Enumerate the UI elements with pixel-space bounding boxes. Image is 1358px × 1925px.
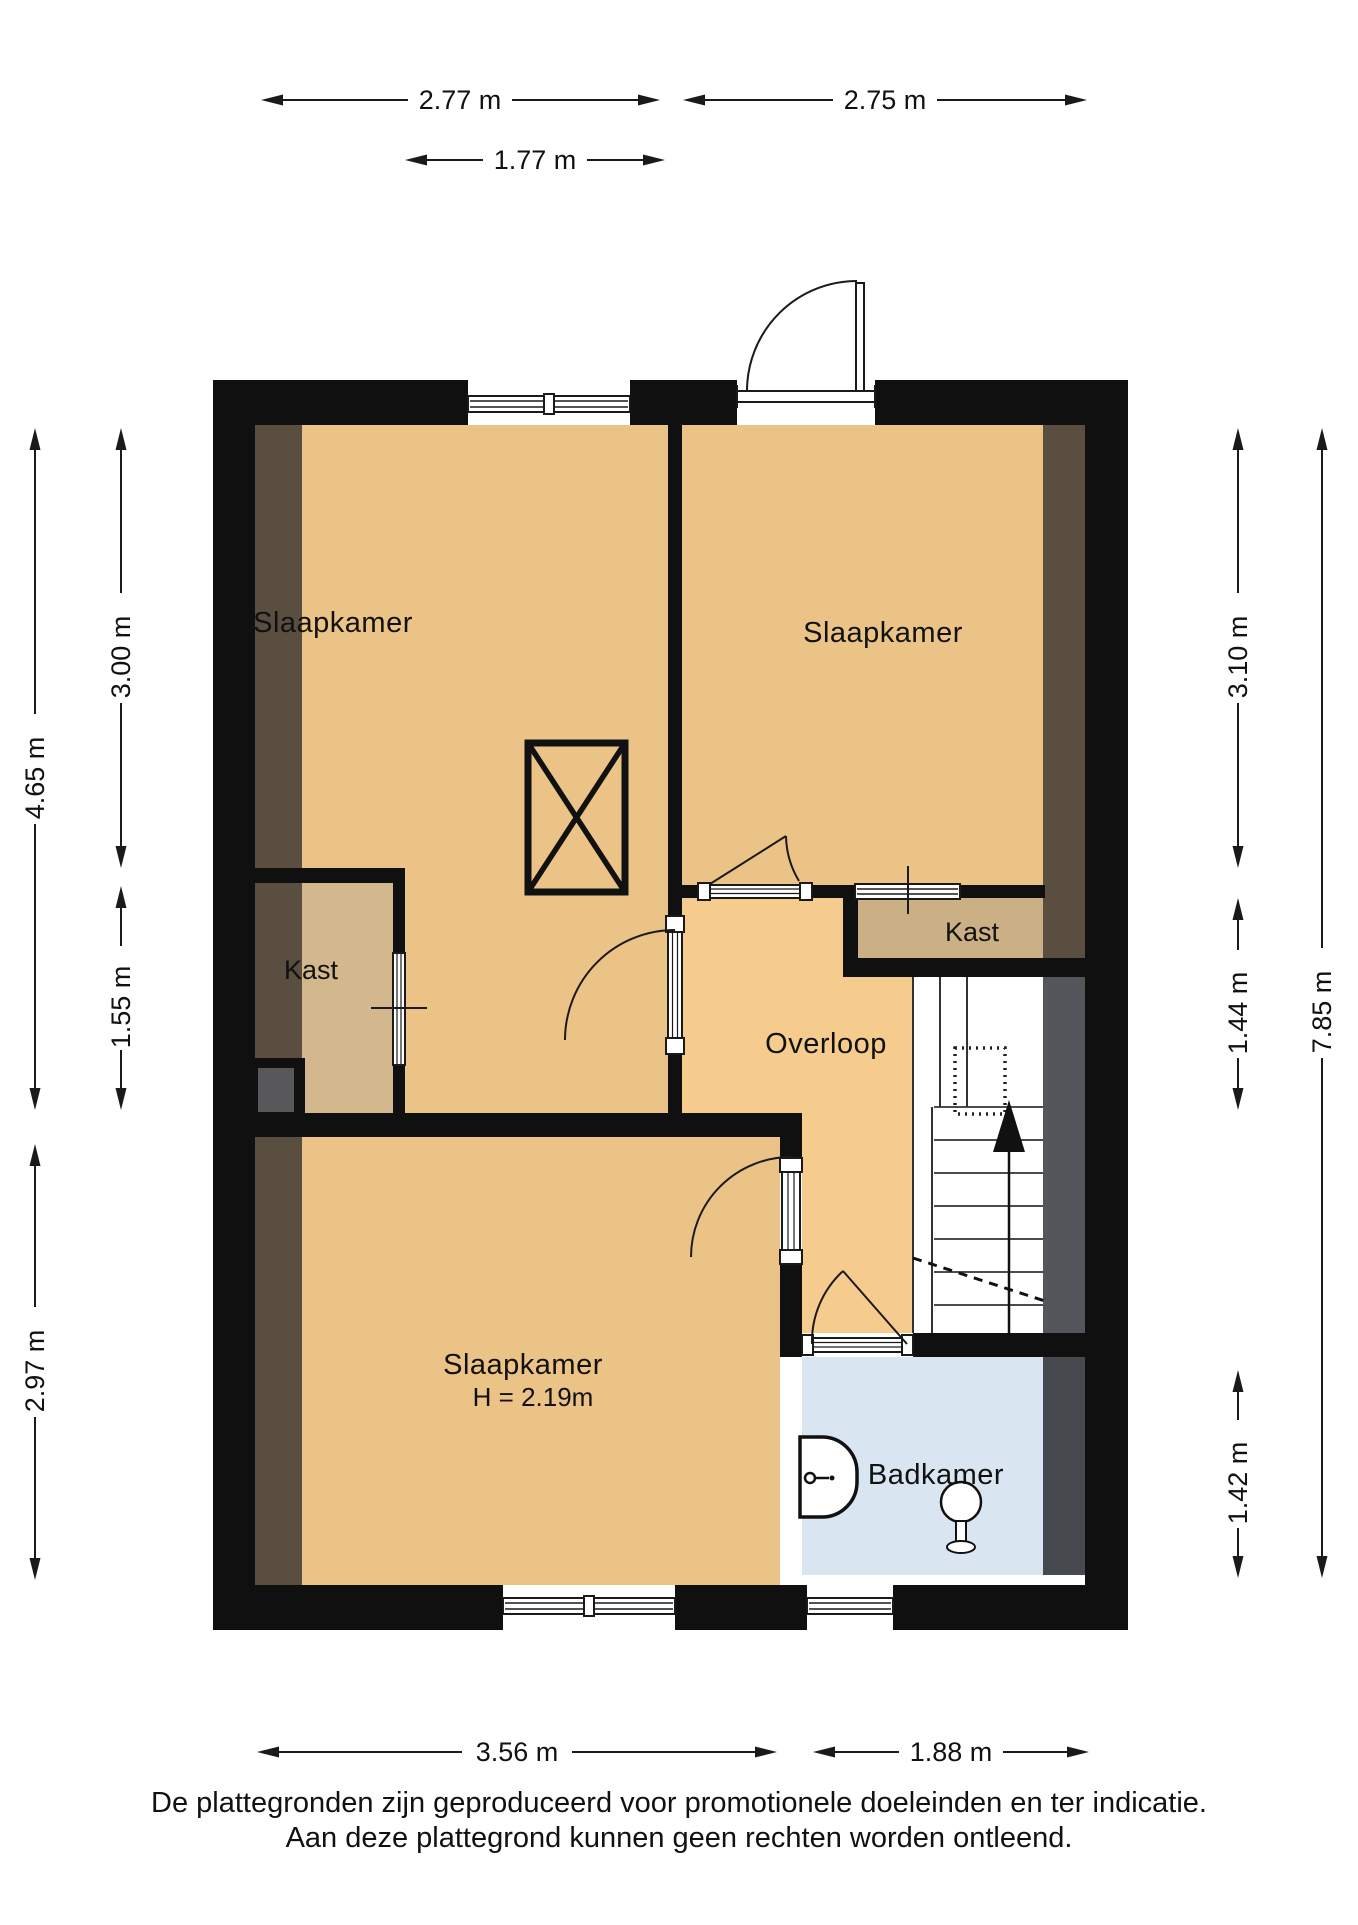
shadow-left-bottom bbox=[255, 1137, 302, 1585]
room-label-bedroom-bottom: Slaapkamer bbox=[443, 1349, 603, 1381]
bathtub-icon bbox=[800, 1437, 857, 1517]
svg-text:1.55 m: 1.55 m bbox=[106, 966, 136, 1049]
door-leaf bbox=[856, 283, 864, 391]
room-label-landing: Overloop bbox=[765, 1028, 887, 1060]
wall bbox=[668, 425, 682, 930]
door-jamb bbox=[666, 1038, 684, 1054]
wall bbox=[893, 1585, 1128, 1630]
dimension-arrow-left-lower: 1.55 m bbox=[106, 886, 136, 1110]
dimension-arrow-right-mid: 1.44 m bbox=[1223, 898, 1253, 1110]
room-label-bedroom-bottom-height: H = 2.19m bbox=[473, 1382, 594, 1412]
door-jamb bbox=[780, 1250, 802, 1264]
window-bottom-left bbox=[503, 1596, 675, 1616]
room-label-bathroom: Badkamer bbox=[868, 1459, 1004, 1491]
shadow-left-top bbox=[255, 425, 302, 868]
wall bbox=[843, 958, 1085, 977]
dimension-arrow-top-right-width: 2.75 m bbox=[683, 85, 1087, 115]
duct-square bbox=[258, 1068, 294, 1112]
footer-line-2: Aan deze plattegrond kunnen geen rechten… bbox=[286, 1822, 1073, 1854]
dimension-arrow-top-inner-width: 1.77 m bbox=[405, 145, 665, 175]
wall bbox=[960, 885, 1045, 898]
dimension-arrow-bottom-left: 3.56 m bbox=[257, 1737, 777, 1767]
dimension-arrow-top-left-width: 2.77 m bbox=[261, 85, 660, 115]
svg-text:1.88 m: 1.88 m bbox=[910, 1737, 993, 1767]
shadow-right-bathroom bbox=[1043, 1357, 1085, 1575]
dimension-arrow-left-total: 4.65 m bbox=[20, 428, 50, 1110]
svg-text:2.75 m: 2.75 m bbox=[844, 85, 927, 115]
shadow-right-stairs bbox=[1043, 977, 1085, 1333]
dimension-arrow-right-bottom: 1.42 m bbox=[1223, 1370, 1253, 1578]
door-jamb bbox=[902, 1335, 913, 1355]
window-bottom-right bbox=[807, 1598, 893, 1614]
door-jamb bbox=[698, 883, 710, 900]
footer-line-1: De plattegronden zijn geproduceerd voor … bbox=[151, 1787, 1207, 1819]
room-label-closet-right: Kast bbox=[945, 917, 1000, 947]
door-jamb bbox=[800, 883, 812, 900]
door-jamb bbox=[780, 1158, 802, 1172]
room-label-bedroom-top-left: Slaapkamer bbox=[253, 607, 413, 639]
svg-text:1.77 m: 1.77 m bbox=[494, 145, 577, 175]
svg-text:2.97 m: 2.97 m bbox=[20, 1330, 50, 1413]
wall bbox=[255, 868, 405, 883]
svg-text:3.10 m: 3.10 m bbox=[1223, 616, 1253, 699]
svg-text:3.00 m: 3.00 m bbox=[106, 616, 136, 699]
door-swing-arc bbox=[747, 281, 857, 391]
wall bbox=[630, 380, 737, 425]
door-top-entry bbox=[737, 281, 875, 408]
shadow-right-top bbox=[1043, 425, 1085, 958]
wall bbox=[213, 380, 255, 1630]
floorplan-page: Slaapkamer Slaapkamer Slaapkamer H = 2.1… bbox=[0, 0, 1358, 1920]
dimension-arrow-bottom-right: 1.88 m bbox=[813, 1737, 1089, 1767]
bedroom-top-right-floor bbox=[678, 425, 1043, 885]
wall bbox=[780, 1137, 802, 1158]
window-top bbox=[468, 394, 630, 414]
closet-left-floor bbox=[302, 883, 393, 1113]
wall bbox=[1085, 380, 1128, 1630]
dimension-arrow-right-upper: 3.10 m bbox=[1223, 428, 1253, 868]
dimension-arrow-right-total: 7.85 m bbox=[1307, 428, 1337, 1578]
room-label-bedroom-top-right: Slaapkamer bbox=[803, 617, 963, 649]
footer-disclaimer: De plattegronden zijn geproduceerd voor … bbox=[151, 1787, 1207, 1854]
dimension-arrow-left-bottom: 2.97 m bbox=[20, 1144, 50, 1580]
wall bbox=[393, 868, 405, 953]
wall bbox=[255, 1113, 802, 1137]
svg-text:1.42 m: 1.42 m bbox=[1223, 1442, 1253, 1525]
floorplan-svg: Slaapkamer Slaapkamer Slaapkamer H = 2.1… bbox=[0, 0, 1358, 1920]
wall bbox=[675, 1585, 807, 1630]
wall bbox=[913, 1333, 1085, 1357]
svg-text:2.77 m: 2.77 m bbox=[419, 85, 502, 115]
svg-text:1.44 m: 1.44 m bbox=[1223, 972, 1253, 1055]
wall bbox=[213, 1585, 503, 1630]
room-label-closet-left: Kast bbox=[284, 955, 339, 985]
dimension-arrow-left-upper: 3.00 m bbox=[106, 428, 136, 868]
wall bbox=[682, 885, 698, 898]
svg-text:4.65 m: 4.65 m bbox=[20, 737, 50, 820]
wall bbox=[780, 1264, 802, 1357]
svg-text:3.56 m: 3.56 m bbox=[476, 1737, 559, 1767]
svg-text:7.85 m: 7.85 m bbox=[1307, 971, 1337, 1054]
